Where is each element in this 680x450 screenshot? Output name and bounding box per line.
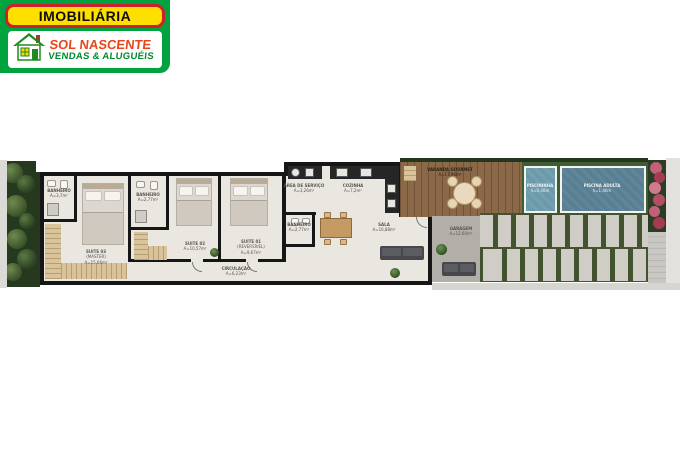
toilet-bath2: [150, 181, 158, 190]
label-suite02: SUITE 02 A=10,57m²: [183, 241, 206, 252]
bed-suite03: [82, 183, 124, 245]
back-garden: [7, 161, 40, 287]
label-banheiro-social: BANHEIRO A=2,77m²: [287, 222, 311, 233]
label-garagem: GARAGEM A=12,60m²: [449, 226, 472, 237]
label-suite03: SUITE 03 (MASTER) A=15,66m²: [84, 249, 107, 265]
house-logo-icon: [12, 32, 46, 67]
chair: [324, 212, 331, 218]
wall-left: [40, 172, 44, 285]
left-sidewalk: [0, 160, 7, 288]
plant-garage: [436, 244, 447, 255]
plant-sala: [390, 268, 400, 278]
plant-hall: [210, 248, 219, 257]
wall-bath2-b: [131, 227, 169, 230]
wall-bath1: [74, 176, 77, 222]
label-suite01: SUITE 01 (REVERSÍVEL) A=9,67m²: [237, 239, 265, 255]
wardrobe-suite03-left: [45, 224, 61, 279]
wall-bath1-b: [44, 219, 77, 222]
chair: [340, 212, 347, 218]
wall-suite3: [128, 176, 131, 262]
deck-table: [453, 182, 476, 205]
garage-bench: [442, 262, 476, 276]
label-piscininha: PISCININHA h=0,40m: [527, 183, 553, 194]
floor-plan-page: IMOBILIÁRIA SOL NASCENTE VENDAS & ALUGUÉ…: [0, 0, 680, 450]
closet-suite02-b: [148, 246, 167, 260]
wall-hall-3: [258, 259, 286, 262]
chair: [324, 239, 331, 245]
label-cozinha: COZINHA A=7,2m²: [343, 183, 364, 194]
logo-panel: SOL NASCENTE VENDAS & ALUGUÉIS: [8, 31, 162, 68]
bed-suite01: [230, 178, 268, 226]
chair: [340, 239, 347, 245]
wall-top-left: [40, 172, 288, 176]
label-banheiro-suite: BANHEIRO A=2,77m²: [136, 192, 160, 203]
wall-bottom: [40, 281, 432, 285]
sink-bath1: [47, 180, 56, 187]
deck-cabinet: [404, 166, 416, 181]
laundry-counter: [288, 166, 322, 179]
label-varanda: VARANDA GOURMET A=17,96m²: [427, 167, 473, 178]
sofa: [380, 246, 424, 260]
label-banheiro-master: BANHEIRO A=3,7m²: [47, 188, 71, 199]
wall-wc-r: [312, 215, 315, 247]
sink-bath2: [136, 181, 145, 188]
logo-title: IMOBILIÁRIA: [39, 8, 132, 24]
kitchen-counter-side: [385, 179, 399, 213]
shower-bath2: [135, 210, 147, 223]
wall-hall-2: [203, 259, 246, 262]
wall-suites: [218, 176, 221, 259]
logo-banner: IMOBILIÁRIA: [5, 4, 165, 28]
driveway-pavers: [480, 213, 648, 282]
label-sala: SALA A=16,88m²: [372, 222, 395, 233]
side-path: [648, 232, 666, 285]
label-circulacao: CIRCULAÇÃO A=6,23m²: [222, 266, 251, 277]
wardrobe-suite03-bottom: [61, 263, 127, 279]
flower-shrubs: [648, 160, 666, 232]
label-piscina-adulta: PISCINA ADULTA h=1,40m: [584, 183, 621, 194]
label-area-servico: ÁREA DE SERVIÇO A=3,26m²: [284, 183, 324, 194]
facade-step: [36, 156, 286, 172]
dining-table: [320, 218, 352, 238]
wall-bath2: [166, 176, 169, 230]
kitchen-counter-top: [330, 166, 399, 179]
logo-services: VENDAS & ALUGUÉIS: [48, 51, 155, 61]
agency-logo: IMOBILIÁRIA SOL NASCENTE VENDAS & ALUGUÉ…: [0, 0, 170, 73]
bed-suite02: [176, 178, 212, 226]
wall-wc-b: [286, 244, 315, 247]
logo-brand-name: SOL NASCENTE: [49, 38, 156, 52]
shower-bath1: [47, 203, 59, 216]
street-sidewalk: [666, 158, 680, 290]
curb: [432, 283, 680, 290]
closet-suite02-l: [134, 232, 148, 260]
